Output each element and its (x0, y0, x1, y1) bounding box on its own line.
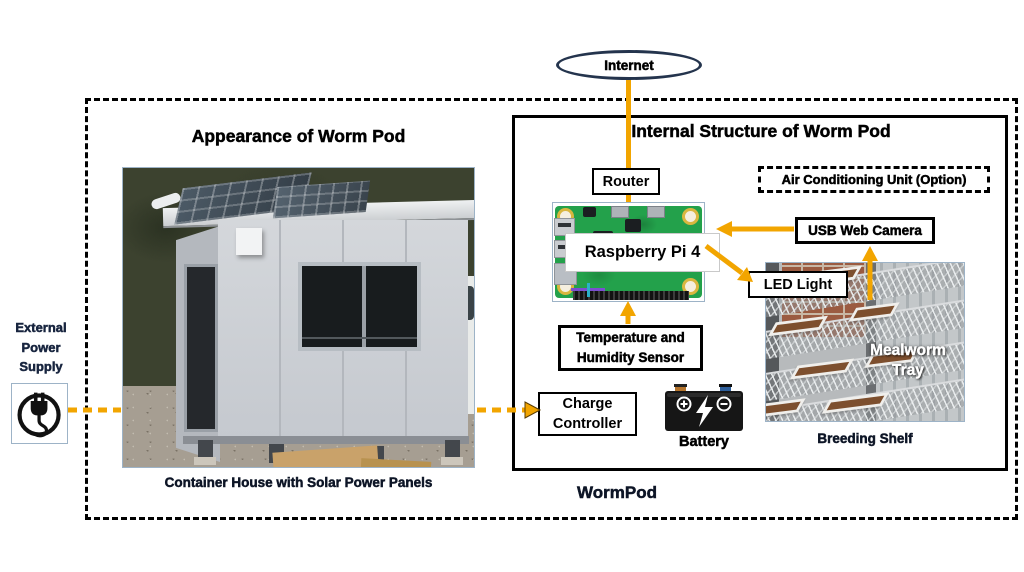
temp-humidity-sensor-box: Temperature and Humidity Sensor (558, 325, 703, 371)
battery-icon (663, 384, 745, 434)
gpio-header (573, 291, 689, 300)
battery-icon (663, 384, 745, 434)
container-photo-caption: Container House with Solar Power Panels (122, 475, 475, 490)
internet-node: Internet (556, 50, 702, 80)
jumper-wire (587, 283, 590, 297)
foot-pad (441, 457, 463, 465)
external-power-line1: External (15, 318, 66, 338)
usb-web-camera-box: USB Web Camera (795, 217, 935, 244)
container-house-photo (122, 167, 475, 468)
mealworm-tray-line1: Mealworm (854, 341, 962, 361)
power-plug-icon (14, 386, 66, 442)
container-window (298, 262, 421, 351)
internal-structure-title: Internal Structure of Worm Pod (522, 121, 1000, 142)
external-power-line3: Supply (15, 357, 66, 377)
battery-label: Battery (663, 434, 745, 450)
wormpod-caption: WormPod (527, 483, 707, 503)
container-side-face (176, 226, 220, 462)
router-box: Router (592, 168, 660, 195)
external-power-line2: Power (15, 338, 66, 358)
appearance-title: Appearance of Worm Pod (122, 126, 475, 147)
led-light-box: LED Light (748, 271, 848, 298)
charge-line1: Charge (553, 394, 622, 414)
charge-line2: Controller (553, 414, 622, 434)
container-base (183, 436, 469, 444)
charge-controller-box: Charge Controller (538, 392, 637, 436)
sensor-line1: Temperature and (576, 328, 685, 348)
foot-pad (194, 457, 216, 465)
power-plug-icon (11, 383, 68, 444)
mealworm-tray-line2: Tray (854, 361, 962, 381)
breeding-shelf-caption: Breeding Shelf (765, 431, 965, 446)
raspberry-pi-label: Raspberry Pi 4 (565, 233, 720, 272)
container-door (184, 264, 218, 432)
sensor-line2: Humidity Sensor (576, 348, 685, 368)
ac-unit-box: Air Conditioning Unit (Option) (758, 166, 990, 193)
container-front-face (218, 220, 468, 438)
vent-box (236, 228, 262, 255)
external-power-label: External Power Supply (2, 318, 80, 377)
wormpod-diagram: Appearance of Worm Pod Internal Structur… (0, 0, 1024, 572)
mealworm-tray-label: Mealworm Tray (854, 341, 962, 381)
